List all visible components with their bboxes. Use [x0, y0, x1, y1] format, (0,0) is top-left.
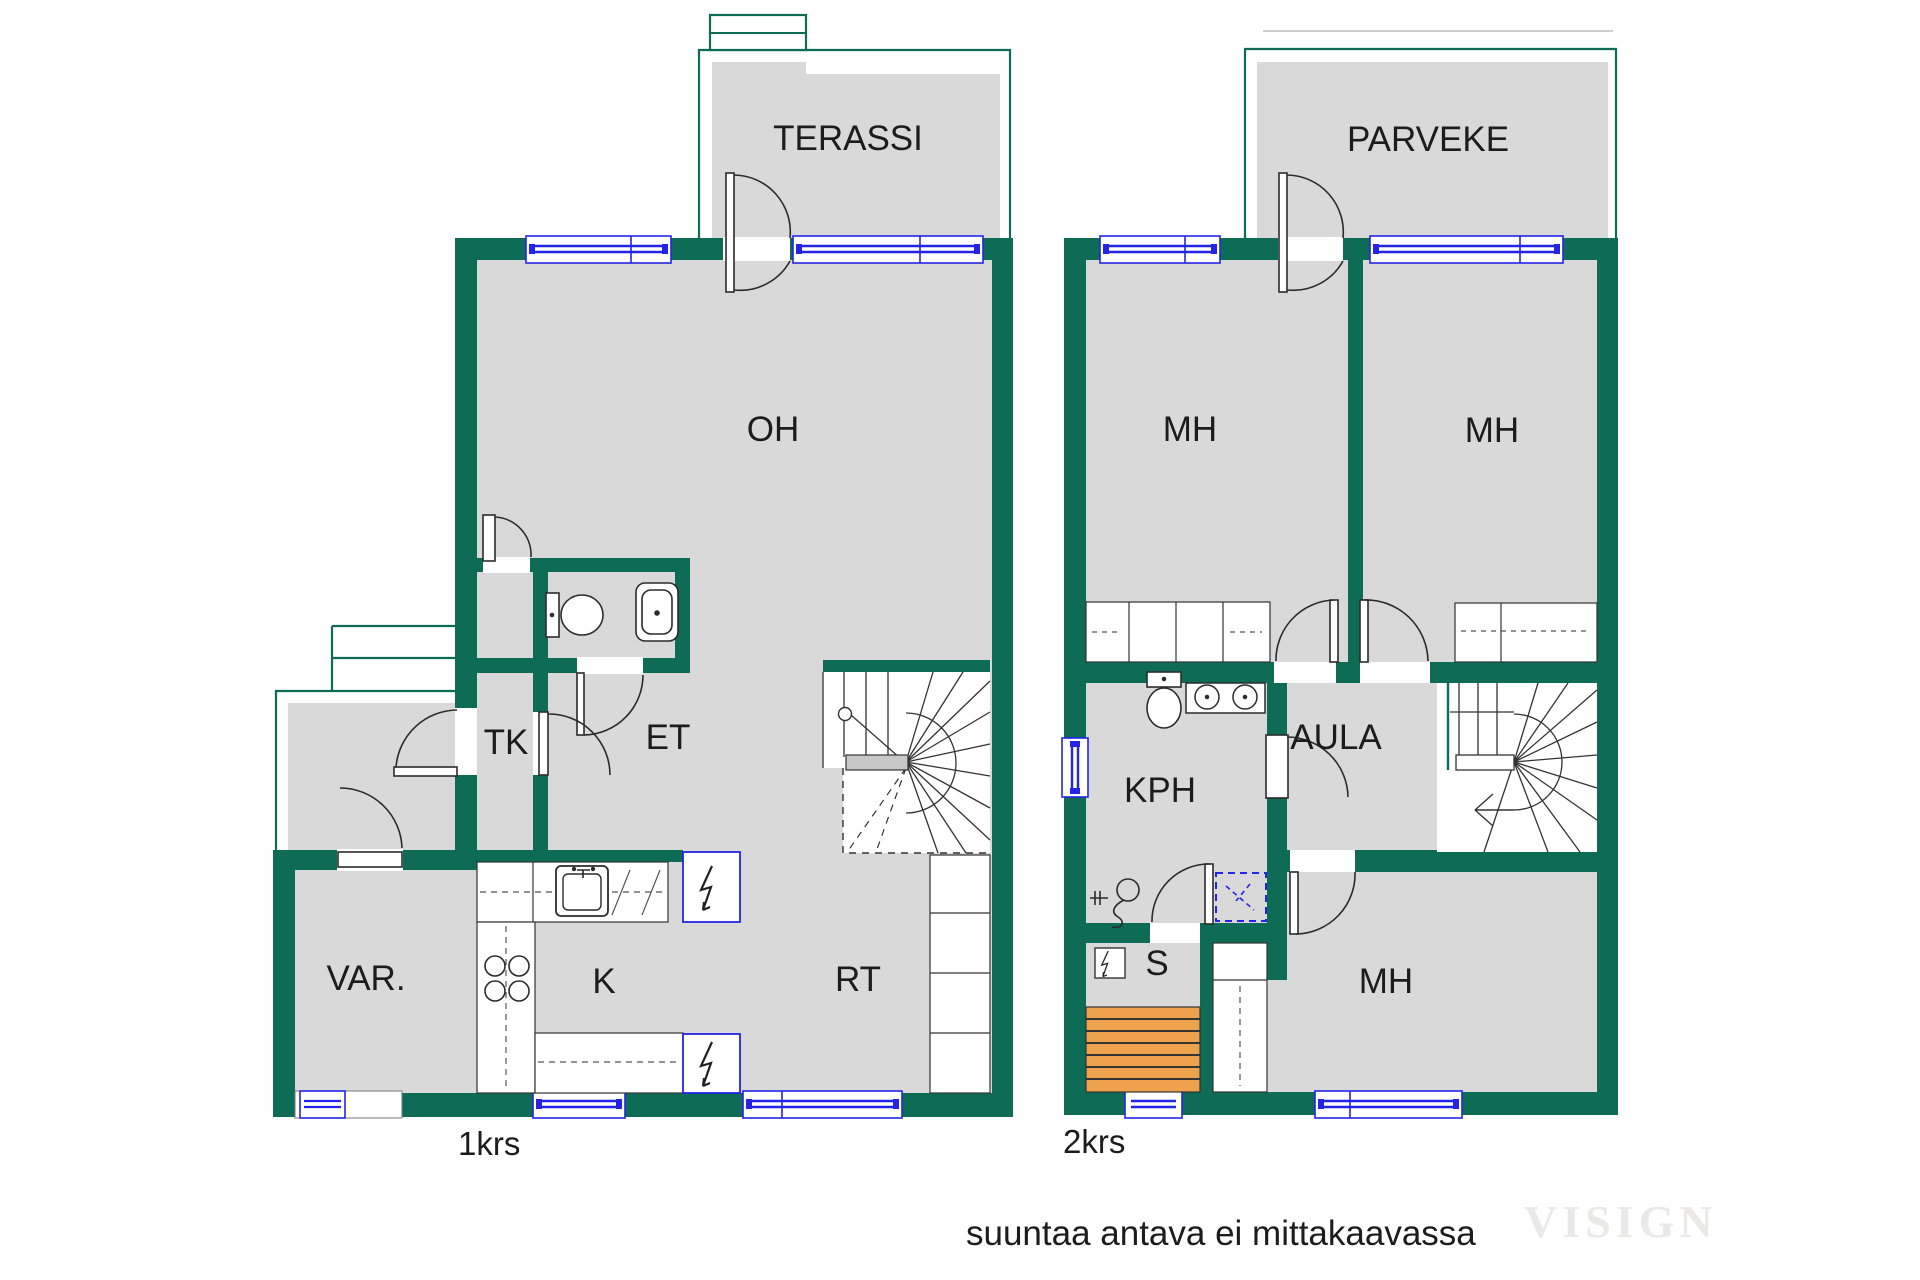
window-icon [1370, 236, 1563, 263]
stairs-icon [823, 672, 990, 853]
window-icon [1125, 1091, 1182, 1118]
floor1-caption: 1krs [458, 1125, 520, 1162]
terrace-area: TERASSI [699, 15, 1010, 238]
window-icon [526, 236, 671, 263]
sauna-heater-icon [1095, 948, 1125, 978]
appliance-zigzag-icon [683, 1034, 740, 1093]
room-label-aula: AULA [1290, 718, 1382, 757]
floor1-plan: TERASSI [273, 15, 1013, 1162]
room-label-var: VAR. [326, 959, 405, 998]
wardrobe-icon [1086, 602, 1270, 662]
cabinet-row [930, 855, 990, 1093]
window-icon [793, 236, 983, 263]
floorplan-page: TERASSI [0, 0, 1920, 1280]
room-label-terassi: TERASSI [773, 119, 923, 158]
room-label-parveke: PARVEKE [1347, 120, 1509, 159]
window-icon [743, 1091, 902, 1118]
room-label-rt: RT [835, 960, 881, 999]
room-label-k: K [592, 962, 615, 1001]
balcony-area: PARVEKE [1245, 31, 1616, 238]
sink-icon [1186, 683, 1265, 713]
window-icon [295, 1091, 402, 1118]
window-icon [1315, 1091, 1462, 1118]
closet [1213, 943, 1267, 1092]
room-label-oh: OH [747, 410, 800, 449]
room-label-kph: KPH [1124, 771, 1196, 810]
wardrobe-icon [1455, 603, 1597, 662]
room-label-tk: TK [484, 723, 529, 762]
window-icon [533, 1091, 625, 1118]
sauna-bench-icon [1086, 1007, 1200, 1092]
floor2-plan: PARVEKE [1062, 31, 1618, 1160]
room-label-mh3: MH [1359, 962, 1413, 1001]
toilet-icon [546, 593, 603, 637]
room-label-s: S [1145, 944, 1168, 983]
room-label-et: ET [646, 718, 691, 757]
watermark: VISIGN [1524, 1196, 1718, 1247]
room-label-mh2: MH [1465, 411, 1519, 450]
window-icon [1100, 236, 1220, 263]
stairs-icon [1437, 683, 1597, 852]
room-label-mh1: MH [1163, 410, 1217, 449]
window-icon [1062, 738, 1088, 797]
sink-icon [636, 583, 678, 641]
floor2-caption: 2krs [1063, 1123, 1125, 1160]
toilet-icon [1147, 672, 1181, 728]
floorplan-canvas: TERASSI [0, 0, 1920, 1280]
disclaimer-text: suuntaa antava ei mittakaavassa [966, 1214, 1476, 1253]
entrance-porch [276, 626, 457, 852]
appliance-zigzag-icon [683, 852, 740, 922]
kitchen-sink-icon [556, 866, 608, 916]
